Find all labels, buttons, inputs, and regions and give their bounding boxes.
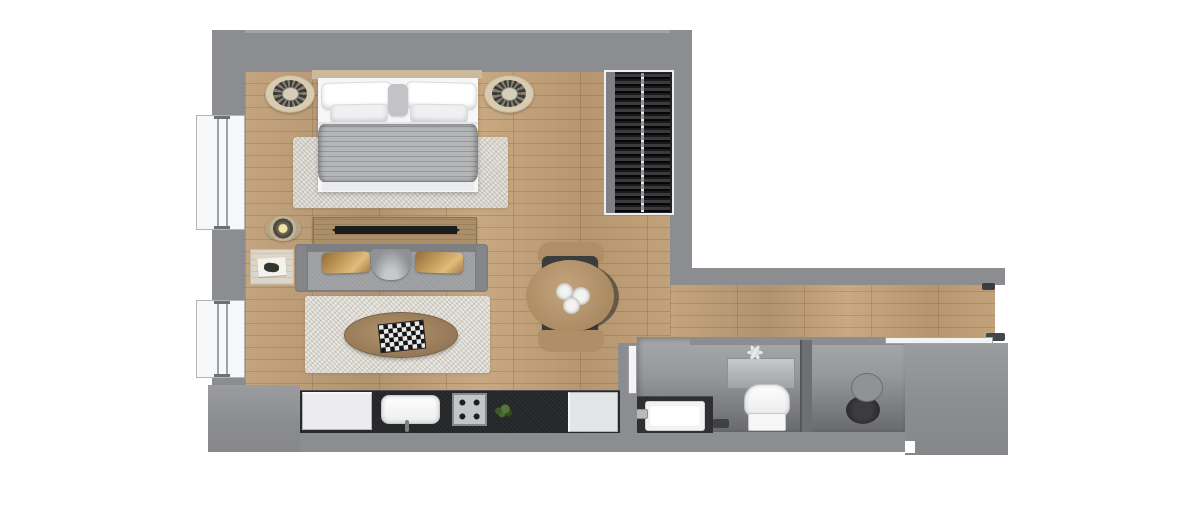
chessboard [378, 320, 427, 354]
dining-chair-south-back [538, 330, 604, 352]
window-frame-cap [214, 374, 230, 377]
sofa-arm-left [295, 244, 308, 292]
window-lower [196, 300, 245, 378]
wardrobe-side-panel [606, 72, 615, 213]
sofa-pillow-right [415, 251, 464, 274]
window-frame-cap [214, 226, 230, 229]
sofa [295, 244, 488, 292]
decor-plate-center [282, 87, 299, 101]
kitchen-faucet [405, 420, 409, 432]
sofa-pillow-left [322, 251, 371, 274]
bottom-left-wall-block [208, 385, 300, 452]
corridor-top-wall [692, 268, 1005, 285]
window-upper [196, 115, 245, 230]
bedside-table-right [484, 75, 534, 113]
bed-foot-strip [322, 182, 474, 191]
double-bed [318, 78, 478, 192]
kitchen-sink [381, 395, 440, 424]
coffee-table [344, 312, 458, 358]
entry-door-frame-top [982, 283, 995, 290]
bathroom-faucet [636, 409, 648, 419]
tv [335, 226, 457, 234]
window-frame-line [226, 116, 228, 229]
plant [492, 404, 514, 418]
decor-plate-center [501, 87, 518, 101]
moth-ornament [264, 262, 280, 273]
floor-drain [713, 419, 729, 428]
refrigerator-cabinet [302, 392, 372, 430]
shower-glass-strip [885, 337, 993, 344]
window-frame-line [217, 301, 219, 377]
bathroom-top-wall [690, 337, 905, 345]
plate [563, 297, 580, 314]
window-frame-cap [214, 301, 230, 304]
top-wall [212, 30, 692, 72]
shower-stool-top [851, 373, 883, 402]
right-block-notch [905, 441, 915, 453]
bed-accent-cushion [388, 84, 408, 116]
bottom-wall [212, 432, 1008, 452]
right-wall-block [905, 343, 1008, 455]
floor-plan [0, 0, 1200, 507]
side-table [250, 249, 294, 285]
bed-blanket [318, 124, 478, 182]
shower-partition [800, 340, 812, 432]
cabinet [568, 392, 618, 432]
wardrobe [604, 70, 674, 215]
hanging-clothes-left [615, 73, 641, 212]
window-frame-cap [214, 116, 230, 119]
cooktop [452, 393, 487, 426]
bedside-table-left [265, 75, 315, 113]
window-frame-line [217, 116, 219, 229]
bathroom-door [628, 345, 637, 394]
bathroom-sink [645, 401, 705, 431]
throw-blanket [371, 249, 411, 280]
toilet-tank [748, 413, 786, 431]
corridor-floor [670, 283, 995, 340]
sofa-arm-right [475, 244, 488, 292]
decor-spotlight [265, 216, 301, 241]
window-frame-line [226, 301, 228, 377]
hanging-clothes-right [644, 73, 670, 212]
